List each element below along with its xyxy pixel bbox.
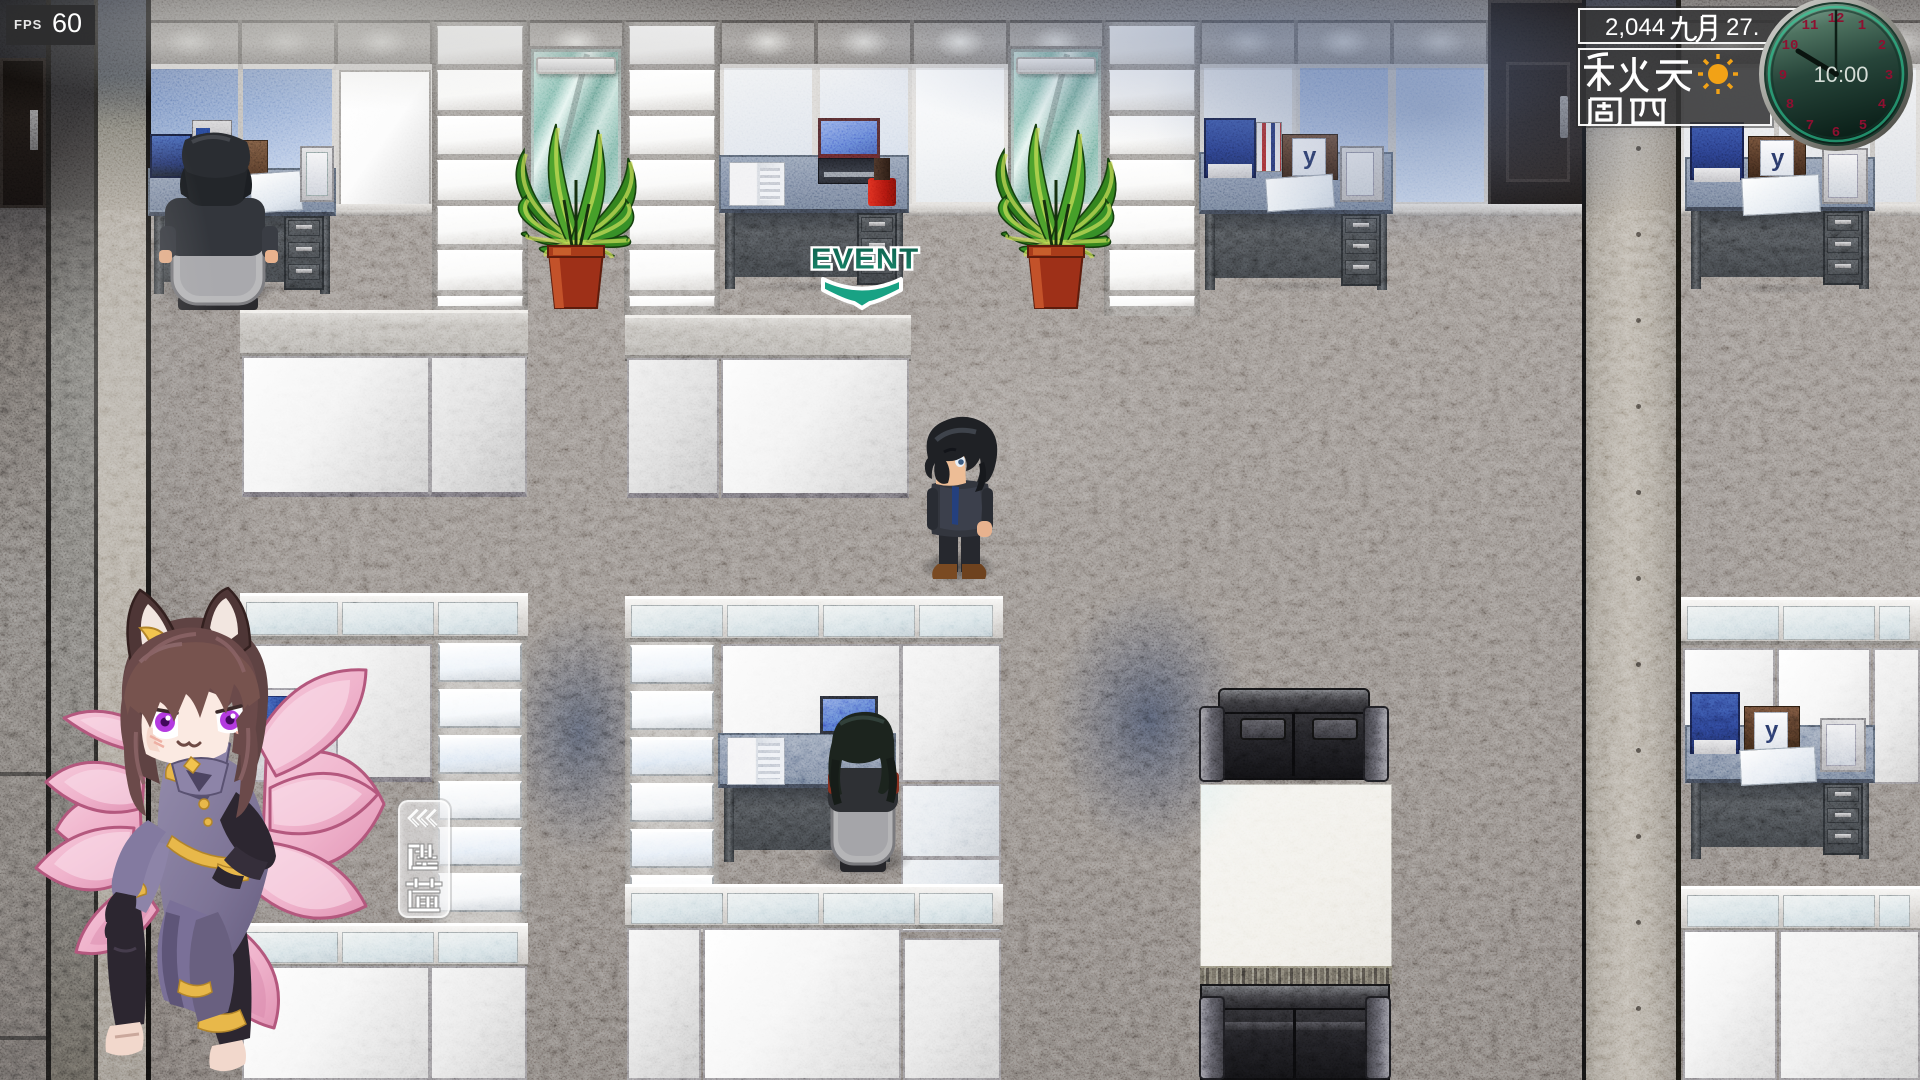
svg-text:27.: 27. [1726,14,1759,41]
svg-text:2,044: 2,044 [1605,14,1665,41]
svg-text:4: 4 [1878,97,1886,113]
svg-text:11: 11 [1802,18,1819,34]
svg-text:1: 1 [1858,18,1866,34]
svg-text:6: 6 [1832,125,1840,141]
svg-text:7: 7 [1806,118,1814,134]
svg-text:9: 9 [1779,68,1787,84]
svg-text:10:00: 10:00 [1813,62,1868,87]
svg-text:5: 5 [1859,118,1867,134]
svg-text:3: 3 [1885,68,1893,84]
svg-text:EVENT: EVENT [811,244,919,276]
svg-text:8: 8 [1786,97,1794,113]
svg-text:2: 2 [1878,38,1886,54]
